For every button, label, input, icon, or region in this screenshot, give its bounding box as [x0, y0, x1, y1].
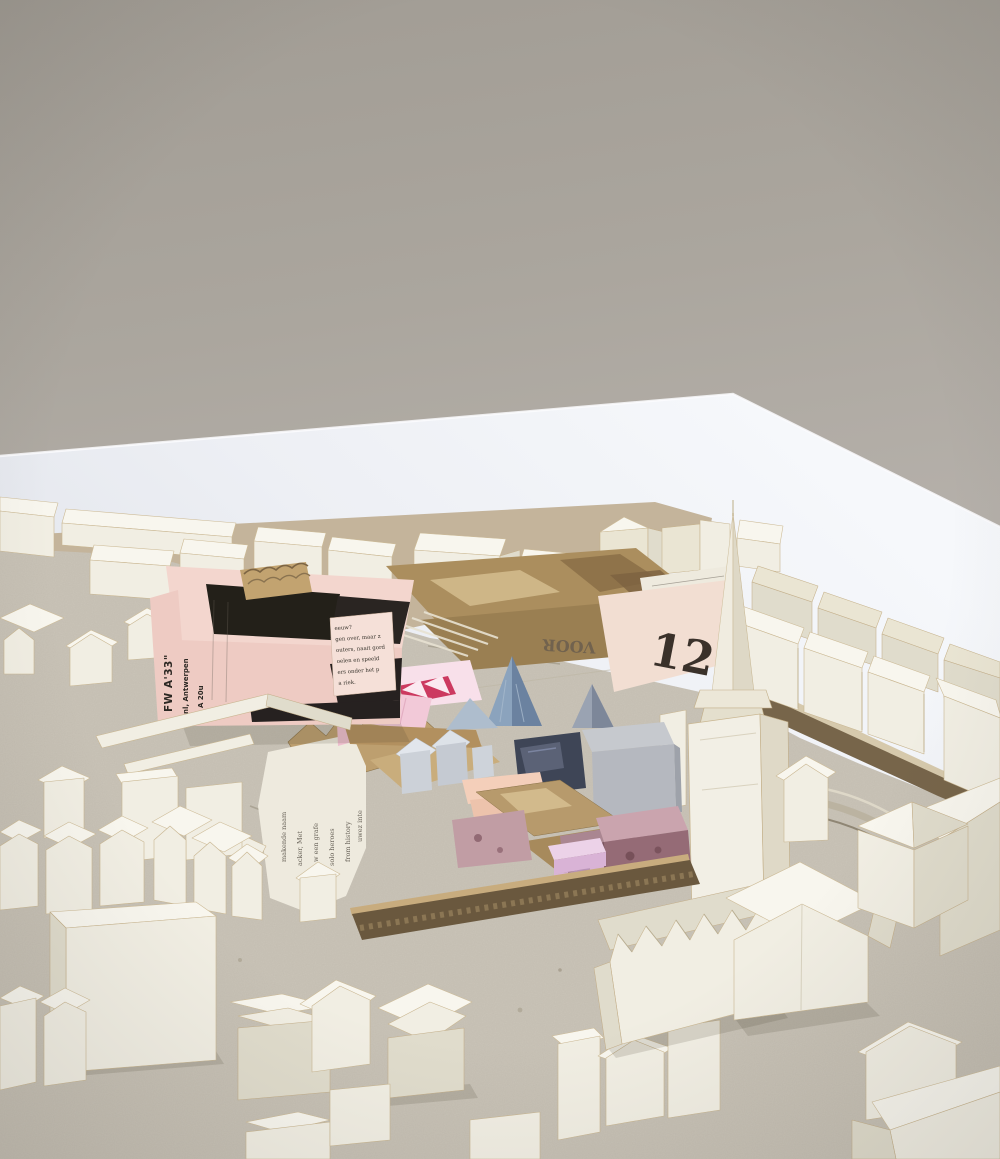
- photo-architectural-model: 12. VOOR: [0, 0, 1000, 1159]
- model-scene: 12. VOOR: [0, 0, 1000, 1159]
- vignette: [0, 0, 1000, 1159]
